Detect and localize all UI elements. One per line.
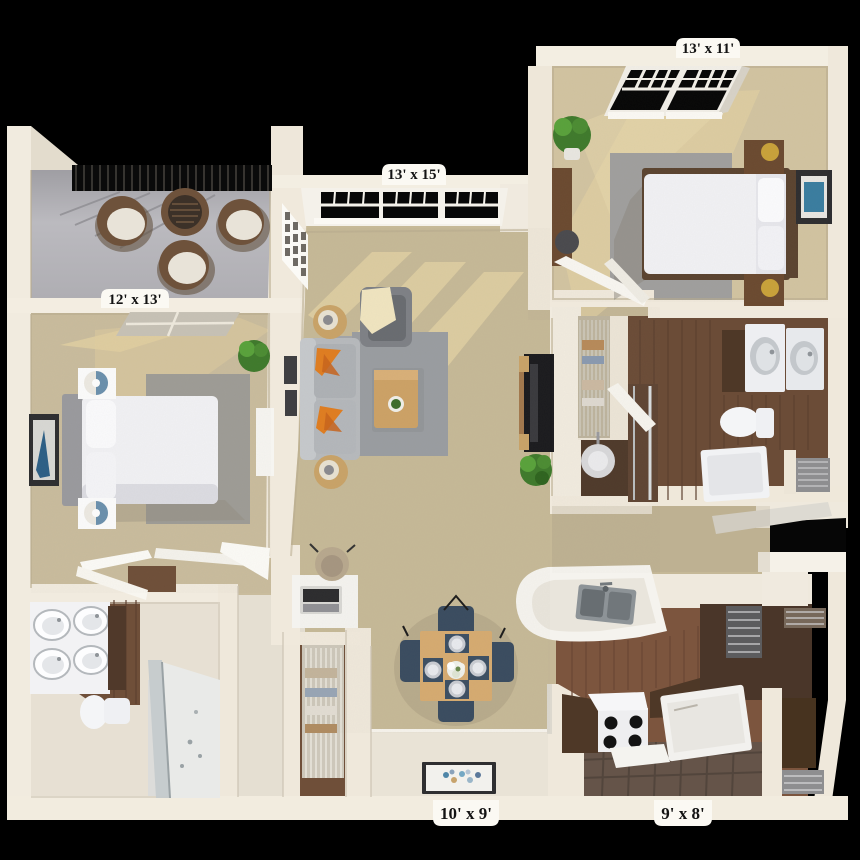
svg-text:12' x 13': 12' x 13' [108, 292, 161, 308]
svg-text:13' x 15': 13' x 15' [387, 167, 440, 183]
svg-text:9' x 8': 9' x 8' [661, 804, 704, 823]
svg-text:13' x 11': 13' x 11' [682, 41, 735, 57]
svg-text:10' x 9': 10' x 9' [440, 804, 492, 823]
